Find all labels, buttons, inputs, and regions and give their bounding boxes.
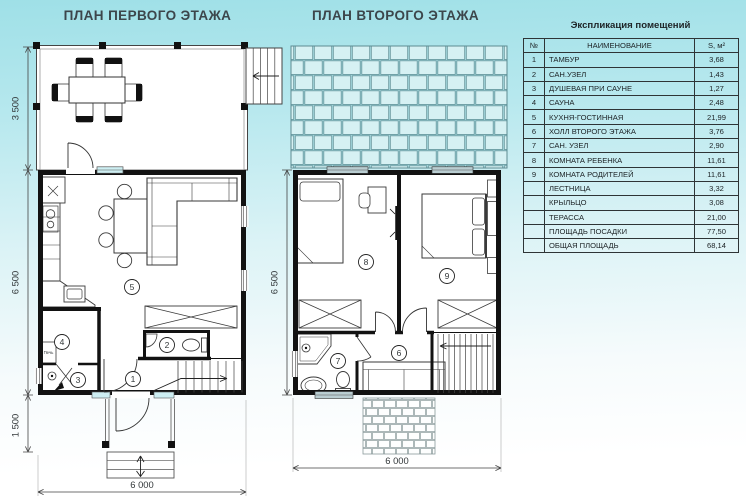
cell-name: ПЛОЩАДЬ ПОСАДКИ — [545, 224, 695, 238]
cell-num: 4 — [524, 96, 545, 110]
cell-area: 3,76 — [695, 124, 739, 138]
cell-area: 11,61 — [695, 153, 739, 167]
room-3-label: 3 — [76, 375, 81, 385]
cell-num: 2 — [524, 67, 545, 81]
cell-name: САУНА — [545, 96, 695, 110]
explication-title: Экспликация помещений — [523, 20, 738, 31]
room-4-label: 4 — [60, 337, 65, 347]
sauna-stove: Печь — [41, 342, 56, 363]
explication-table: № НАИМЕНОВАНИЕ S, м² 1ТАМБУР3,68 2САН.УЗ… — [523, 38, 739, 253]
cell-num — [524, 181, 545, 195]
blueprint-sheet: { "plan1": { "title": "ПЛАН ПЕРВОГО ЭТАЖ… — [0, 0, 746, 502]
cell-area: 3,08 — [695, 196, 739, 210]
cell-area: 21,00 — [695, 210, 739, 224]
cell-num: 9 — [524, 167, 545, 181]
table-row: 9КОМНАТА РОДИТЕЛЕЙ11,61 — [524, 167, 739, 181]
dim-porch-depth: 1 500 — [10, 414, 21, 437]
second-floor-plan: 6 7 8 9 6 500 6 000 — [269, 46, 508, 472]
room-7-label: 7 — [336, 356, 341, 366]
table-row: ПЛОЩАДЬ ПОСАДКИ77,50 — [524, 224, 739, 238]
cell-area: 1,43 — [695, 67, 739, 81]
exterior-stair — [246, 48, 282, 104]
cell-name: ЛЕСТНИЦА — [545, 181, 695, 195]
room-8-label: 8 — [364, 257, 369, 267]
room-6-label: 6 — [397, 348, 402, 358]
cell-name: ТЕРАССА — [545, 210, 695, 224]
cell-name: КУХНЯ-ГОСТИННАЯ — [545, 110, 695, 124]
cell-area: 68,14 — [695, 239, 739, 253]
cell-name: КОМНАТА РЕБЕНКА — [545, 153, 695, 167]
table-header-row: № НАИМЕНОВАНИЕ S, м² — [524, 39, 739, 53]
window — [92, 392, 110, 398]
terrace-roof — [291, 46, 507, 168]
header-num: № — [524, 39, 545, 53]
cell-area: 2,90 — [695, 139, 739, 153]
cell-name: САН.УЗЕЛ — [545, 67, 695, 81]
cell-area: 1,27 — [695, 81, 739, 95]
cell-num: 1 — [524, 53, 545, 67]
table-row: 1ТАМБУР3,68 — [524, 53, 739, 67]
cell-area: 2,48 — [695, 96, 739, 110]
stove-label: Печь — [44, 350, 55, 355]
cell-name: ДУШЕВАЯ ПРИ САУНЕ — [545, 81, 695, 95]
room-9-label: 9 — [445, 271, 450, 281]
cell-num: 3 — [524, 81, 545, 95]
room-1-label: 1 — [131, 374, 136, 384]
cell-num: 7 — [524, 139, 545, 153]
table-row: 7САН. УЗЕЛ2,90 — [524, 139, 739, 153]
cell-name: КОМНАТА РОДИТЕЛЕЙ — [545, 167, 695, 181]
window — [154, 392, 174, 398]
cell-area: 77,50 — [695, 224, 739, 238]
table-row: 2САН.УЗЕЛ1,43 — [524, 67, 739, 81]
cell-name: ТАМБУР — [545, 53, 695, 67]
header-name: НАИМЕНОВАНИЕ — [545, 39, 695, 53]
cell-area: 21,99 — [695, 110, 739, 124]
porch-roof — [363, 398, 435, 454]
dim-floor1-width: 6 000 — [130, 479, 153, 490]
cell-area: 3,68 — [695, 53, 739, 67]
table-row: КРЫЛЬЦО3,08 — [524, 196, 739, 210]
cell-area: 3,32 — [695, 181, 739, 195]
entry-door — [116, 398, 149, 431]
cell-name: ОБЩАЯ ПЛОЩАДЬ — [545, 239, 695, 253]
porch — [102, 399, 175, 478]
cell-area: 11,61 — [695, 167, 739, 181]
room-5-label: 5 — [130, 282, 135, 292]
cell-num — [524, 224, 545, 238]
cell-num — [524, 239, 545, 253]
first-floor-plan: Печь — [10, 42, 283, 496]
table-row: 8КОМНАТА РЕБЕНКА11,61 — [524, 153, 739, 167]
cell-name: САН. УЗЕЛ — [545, 139, 695, 153]
table-row: 4САУНА2,48 — [524, 96, 739, 110]
table-row: ЛЕСТНИЦА3,32 — [524, 181, 739, 195]
cell-num: 6 — [524, 124, 545, 138]
cell-num: 5 — [524, 110, 545, 124]
table-row: ОБЩАЯ ПЛОЩАДЬ68,14 — [524, 239, 739, 253]
cell-num: 8 — [524, 153, 545, 167]
cell-num — [524, 196, 545, 210]
table-row: ТЕРАССА21,00 — [524, 210, 739, 224]
table-row: 5КУХНЯ-ГОСТИННАЯ21,99 — [524, 110, 739, 124]
table-row: 6ХОЛЛ ВТОРОГО ЭТАЖА3,76 — [524, 124, 739, 138]
wardrobe — [145, 306, 237, 328]
dim-floor2-depth: 6 500 — [269, 271, 280, 294]
dim-terrace-depth: 3 500 — [10, 97, 21, 120]
dim-floor2-width: 6 000 — [385, 455, 408, 466]
cell-name: КРЫЛЬЦО — [545, 196, 695, 210]
table-row: 3ДУШЕВАЯ ПРИ САУНЕ1,27 — [524, 81, 739, 95]
terrace — [33, 42, 248, 170]
cell-name: ХОЛЛ ВТОРОГО ЭТАЖА — [545, 124, 695, 138]
header-area: S, м² — [695, 39, 739, 53]
room-2-label: 2 — [165, 340, 170, 350]
cell-num — [524, 210, 545, 224]
dim-floor1-depth: 6 500 — [10, 271, 21, 294]
